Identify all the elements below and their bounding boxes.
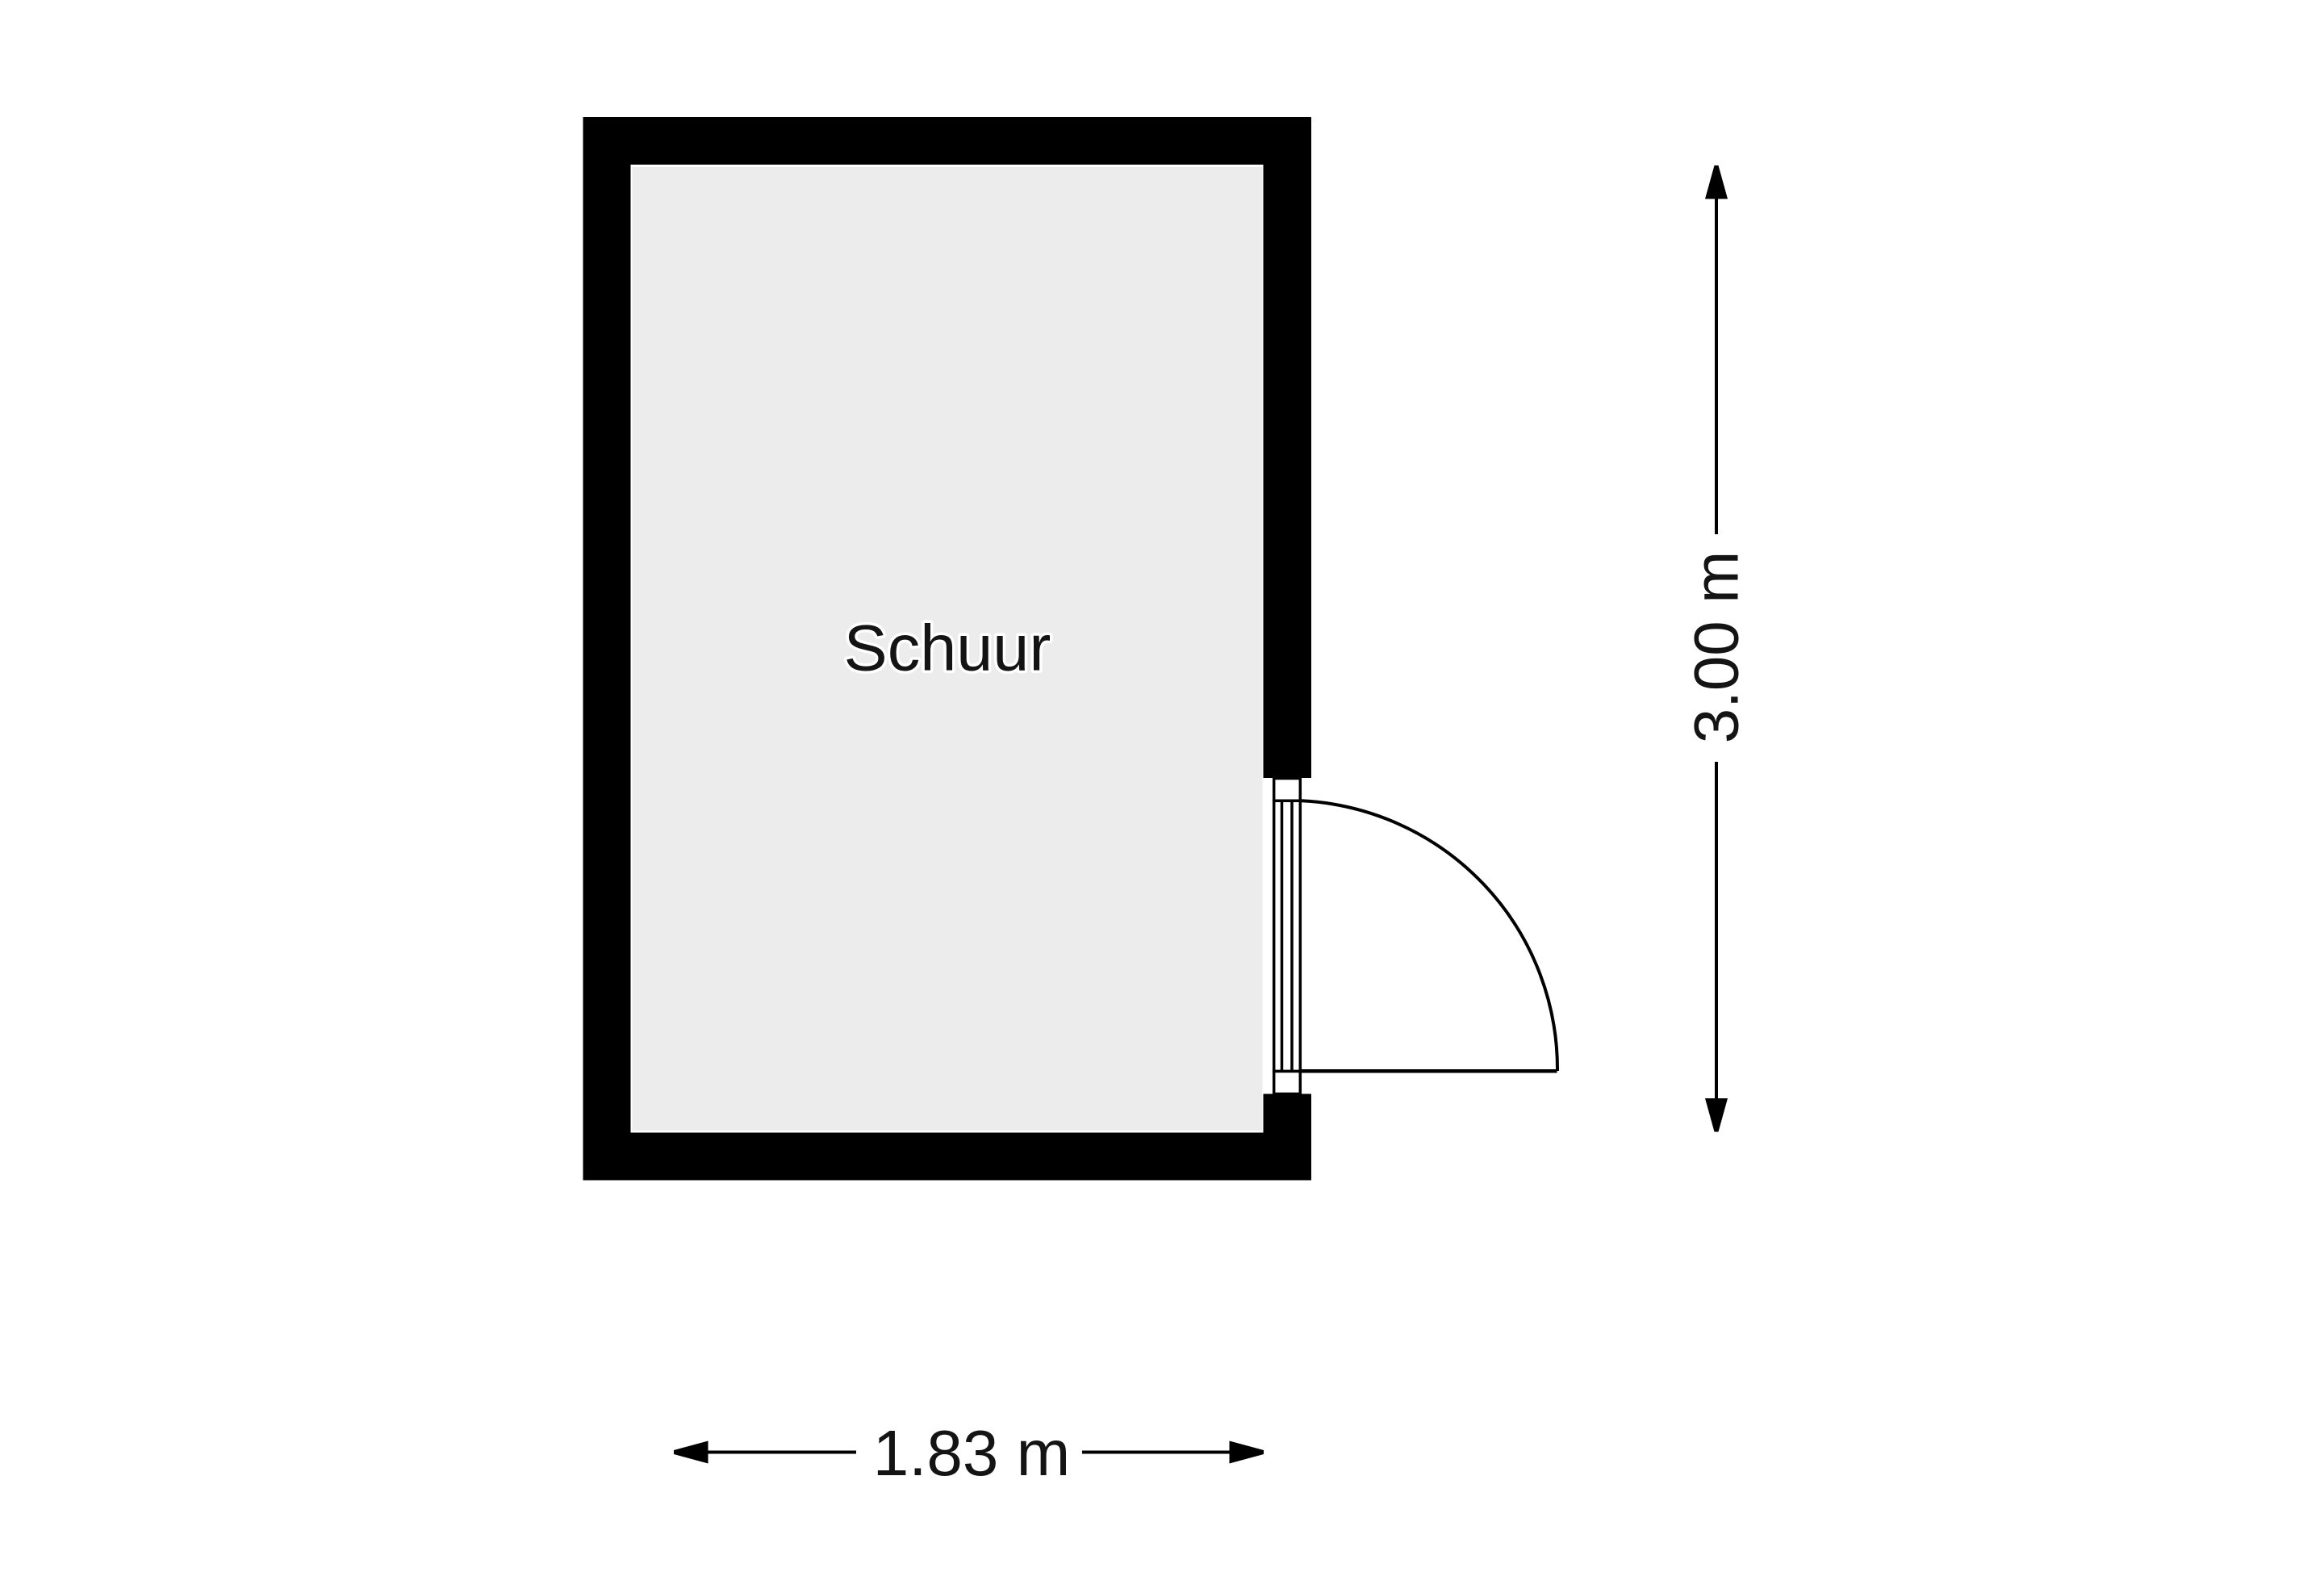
svg-text:3.00 m: 3.00 m — [1681, 551, 1752, 743]
svg-text:Schuur: Schuur — [844, 613, 1051, 685]
svg-text:1.83 m: 1.83 m — [873, 1417, 1071, 1489]
